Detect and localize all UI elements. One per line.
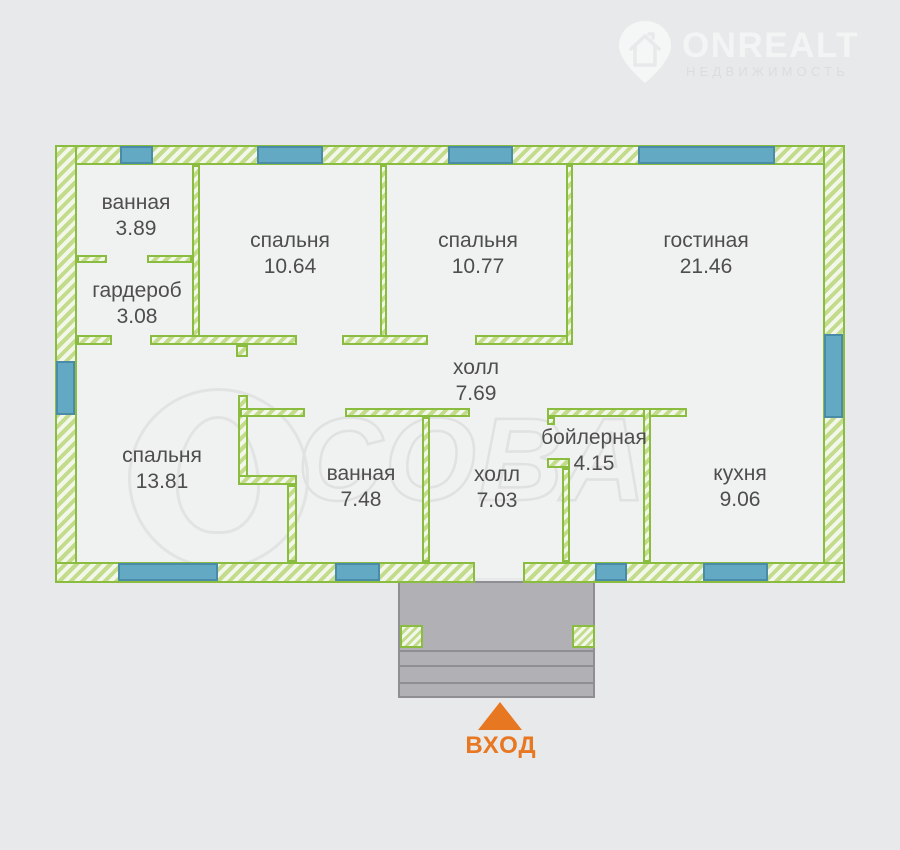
room-area: 7.03 bbox=[474, 488, 520, 514]
wall-bathroom2-left bbox=[287, 485, 297, 562]
room-area: 7.69 bbox=[453, 381, 499, 407]
room-label-kitchen: кухня 9.06 bbox=[713, 461, 766, 513]
room-name: гостиная bbox=[663, 228, 748, 254]
wall-boiler-left-stub bbox=[547, 417, 555, 425]
porch-pillar bbox=[400, 625, 423, 648]
window-bottom-2 bbox=[335, 563, 380, 581]
room-area: 13.81 bbox=[122, 469, 202, 495]
room-name: спальня bbox=[250, 228, 330, 254]
room-name: бойлерная bbox=[541, 425, 647, 451]
room-name: гардероб bbox=[92, 278, 181, 304]
room-area: 3.89 bbox=[102, 216, 171, 242]
room-name: холл bbox=[474, 462, 520, 488]
wall-niche-bottom bbox=[238, 475, 297, 485]
wall-bedroom2-bottom bbox=[475, 335, 573, 345]
window-top-2 bbox=[257, 146, 323, 164]
room-area: 4.15 bbox=[541, 451, 647, 477]
wall-boiler-left-lower bbox=[562, 468, 570, 562]
room-area: 10.77 bbox=[438, 254, 518, 280]
room-label-bathroom-top: ванная 3.89 bbox=[102, 190, 171, 242]
porch-pillar bbox=[572, 625, 595, 648]
entrance-label: ВХОД bbox=[465, 732, 536, 760]
window-bottom-4 bbox=[703, 563, 768, 581]
wall-bathroom-wardrobe-right bbox=[147, 255, 192, 263]
room-name: ванная bbox=[102, 190, 171, 216]
wall-bathroom-wardrobe-left bbox=[77, 255, 107, 263]
window-right-1 bbox=[824, 334, 843, 418]
window-top-1 bbox=[120, 146, 153, 164]
porch-step-line bbox=[400, 682, 593, 684]
entrance-arrow-icon bbox=[478, 702, 522, 730]
wall-bedroom1-bottom bbox=[150, 335, 297, 345]
wall-bathroom2-hall2 bbox=[422, 417, 430, 562]
wall-bedroom3-door-stub bbox=[236, 345, 248, 357]
wall-bedroom1-bedroom2 bbox=[380, 165, 387, 345]
window-bottom-3 bbox=[595, 563, 627, 581]
wall-hall-bottom-left bbox=[240, 408, 305, 417]
room-name: спальня bbox=[438, 228, 518, 254]
room-area: 21.46 bbox=[663, 254, 748, 280]
room-label-bedroom-3: спальня 13.81 bbox=[122, 443, 202, 495]
onrealt-brand-text: ONREALT bbox=[682, 26, 859, 66]
room-label-bedroom-1: спальня 10.64 bbox=[250, 228, 330, 280]
room-label-wardrobe: гардероб 3.08 bbox=[92, 278, 181, 330]
onrealt-subtitle-text: НЕДВИЖИМОСТЬ bbox=[686, 64, 849, 79]
wall-hall-bottom-center bbox=[345, 408, 470, 417]
window-bottom-1 bbox=[118, 563, 218, 581]
room-label-bedroom-2: спальня 10.77 bbox=[438, 228, 518, 280]
room-label-boiler-room: бойлерная 4.15 bbox=[541, 425, 647, 477]
room-area: 9.06 bbox=[713, 487, 766, 513]
wall-wardrobe-bottom-left bbox=[77, 335, 112, 345]
onrealt-pin-icon bbox=[618, 20, 672, 89]
room-name: ванная bbox=[327, 461, 396, 487]
room-label-hall-main: холл 7.69 bbox=[453, 355, 499, 407]
room-area: 10.64 bbox=[250, 254, 330, 280]
room-name: спальня bbox=[122, 443, 202, 469]
wall-hall-top-center bbox=[342, 335, 428, 345]
room-label-living-room: гостиная 21.46 bbox=[663, 228, 748, 280]
window-left-1 bbox=[56, 361, 75, 415]
room-label-bathroom-2: ванная 7.48 bbox=[327, 461, 396, 513]
entrance-porch bbox=[398, 581, 595, 698]
window-top-3 bbox=[448, 146, 513, 164]
room-name: кухня bbox=[713, 461, 766, 487]
wall-livingroom-left bbox=[566, 165, 573, 345]
room-name: холл bbox=[453, 355, 499, 381]
window-top-4 bbox=[638, 146, 775, 164]
wall-outer-bottom-right bbox=[523, 562, 845, 583]
room-label-hall-2: холл 7.03 bbox=[474, 462, 520, 514]
room-area: 7.48 bbox=[327, 487, 396, 513]
porch-step-line bbox=[400, 650, 593, 652]
wall-bathroom-bedroom1 bbox=[192, 165, 200, 345]
room-area: 3.08 bbox=[92, 304, 181, 330]
porch-step-line bbox=[400, 665, 593, 667]
floor-plan: ONREALT НЕДВИЖИМОСТЬ СОВА bbox=[0, 0, 900, 850]
wall-boiler-top bbox=[547, 408, 687, 417]
